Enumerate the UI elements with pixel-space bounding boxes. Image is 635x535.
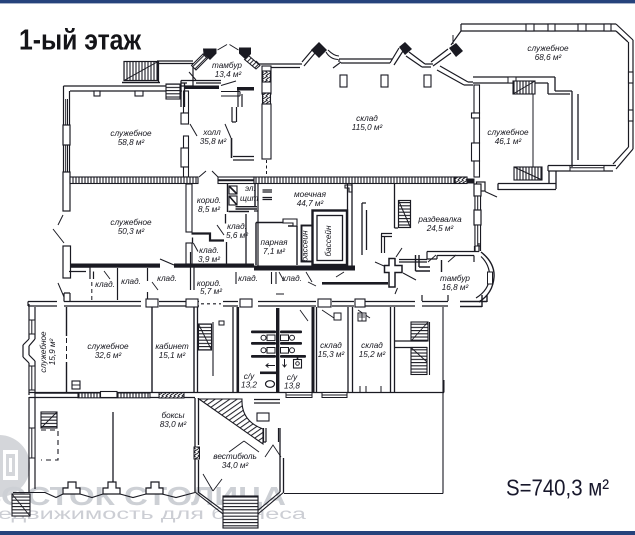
- svg-text:5,6 м²: 5,6 м²: [226, 231, 248, 240]
- svg-text:S=740,3 м²: S=740,3 м²: [506, 475, 609, 501]
- svg-text:служебное: служебное: [39, 331, 48, 373]
- svg-text:клад.: клад.: [95, 280, 115, 289]
- svg-text:кабинет: кабинет: [155, 342, 189, 351]
- svg-text:склад: склад: [356, 114, 378, 123]
- svg-text:15,3 м²: 15,3 м²: [318, 350, 345, 359]
- svg-text:клад.: клад.: [227, 222, 247, 231]
- svg-text:1-ый этаж: 1-ый этаж: [19, 25, 141, 57]
- svg-text:83,0 м²: 83,0 м²: [160, 420, 187, 429]
- svg-text:боксы: боксы: [161, 411, 184, 420]
- svg-text:32,6 м²: 32,6 м²: [95, 351, 122, 360]
- svg-text:щит: щит: [240, 194, 259, 203]
- svg-text:68,6 м²: 68,6 м²: [535, 53, 562, 62]
- svg-text:13,8: 13,8: [284, 382, 300, 391]
- svg-text:служебное: служебное: [487, 128, 529, 137]
- svg-text:44,7 м²: 44,7 м²: [297, 199, 324, 208]
- svg-text:тамбур: тамбур: [212, 61, 242, 70]
- svg-text:16,8 м²: 16,8 м²: [442, 283, 469, 292]
- svg-text:холл: холл: [202, 128, 221, 137]
- svg-text:служебное: служебное: [110, 218, 152, 227]
- svg-text:13,2: 13,2: [241, 381, 257, 390]
- svg-text:46,1 м²: 46,1 м²: [495, 137, 522, 146]
- svg-text:парная: парная: [260, 238, 288, 247]
- svg-text:вестибюль: вестибюль: [213, 452, 257, 461]
- svg-text:тамбур: тамбур: [440, 274, 470, 283]
- svg-text:50,3 м²: 50,3 м²: [118, 227, 145, 236]
- svg-text:склад: склад: [361, 341, 383, 350]
- svg-text:служебное: служебное: [87, 342, 129, 351]
- svg-text:склад: склад: [320, 341, 342, 350]
- svg-text:раздевалка: раздевалка: [417, 215, 462, 224]
- svg-text:13,4 м²: 13,4 м²: [215, 70, 242, 79]
- svg-text:клад.: клад.: [282, 274, 302, 283]
- svg-text:15,2 м²: 15,2 м²: [359, 350, 386, 359]
- svg-text:бассейн: бассейн: [324, 225, 333, 256]
- svg-text:115,0 м²: 115,0 м²: [352, 123, 383, 132]
- svg-text:7,1 м²: 7,1 м²: [263, 247, 285, 256]
- svg-text:34,0 м²: 34,0 м²: [222, 461, 249, 470]
- svg-text:15,1 м²: 15,1 м²: [159, 351, 186, 360]
- svg-text:3,9 м²: 3,9 м²: [198, 255, 220, 264]
- svg-text:корид.: корид.: [197, 196, 221, 205]
- svg-text:бассейн: бассейн: [301, 230, 310, 261]
- svg-text:58,8 м²: 58,8 м²: [118, 138, 145, 147]
- svg-text:35,8 м²: 35,8 м²: [200, 137, 227, 146]
- svg-text:клад.: клад.: [199, 246, 219, 255]
- svg-text:15,9 м²: 15,9 м²: [48, 338, 57, 365]
- svg-text:5,7 м²: 5,7 м²: [200, 287, 222, 296]
- svg-text:служебное: служебное: [110, 129, 152, 138]
- svg-text:моечная: моечная: [294, 190, 327, 199]
- svg-text:клад.: клад.: [238, 274, 258, 283]
- svg-text:служебное: служебное: [527, 44, 569, 53]
- svg-text:клад.: клад.: [121, 277, 141, 286]
- svg-text:клад.: клад.: [157, 274, 177, 283]
- svg-text:8,5 м²: 8,5 м²: [198, 205, 220, 214]
- svg-text:эл.: эл.: [245, 184, 256, 193]
- svg-text:24,5 м²: 24,5 м²: [426, 224, 454, 233]
